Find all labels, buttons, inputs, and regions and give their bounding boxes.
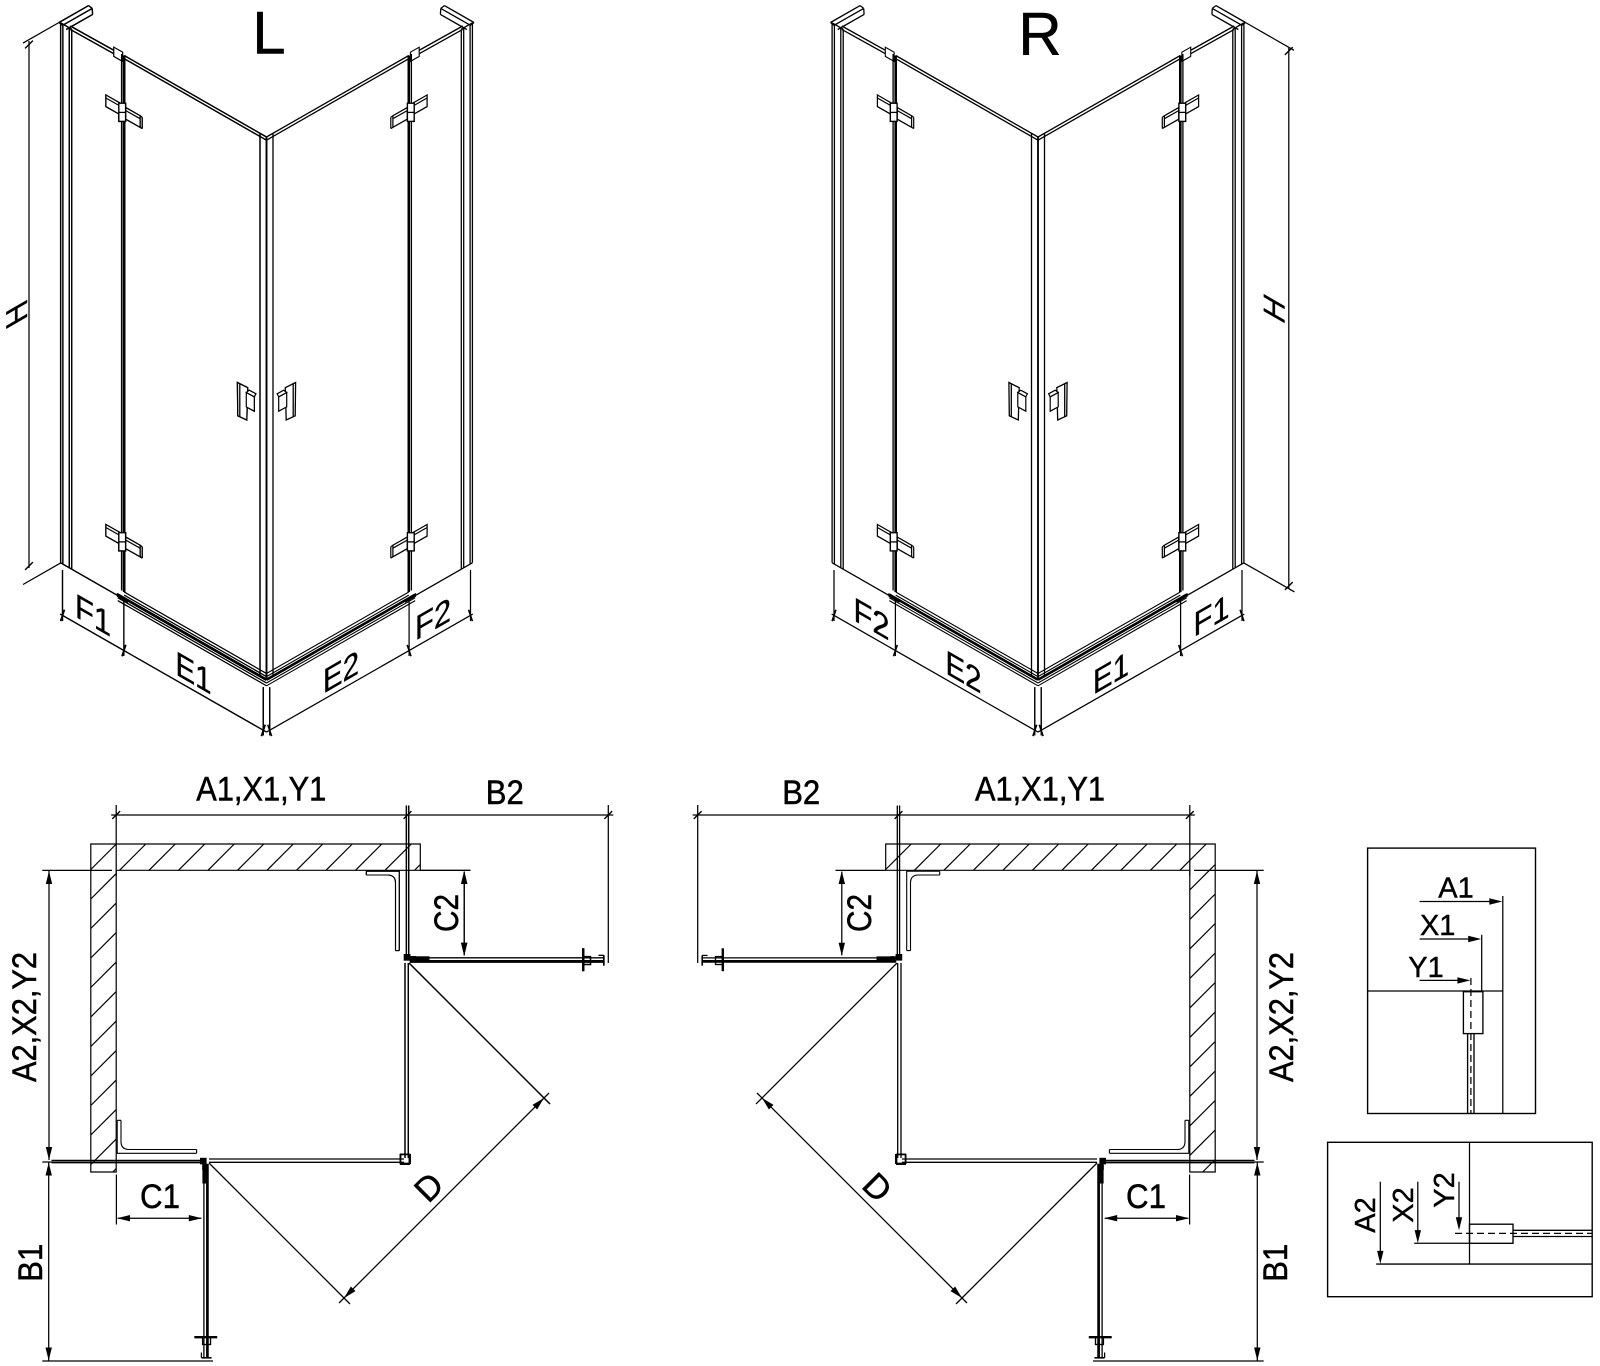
svg-text:A2: A2 (1350, 1197, 1382, 1232)
svg-text:L: L (252, 0, 285, 67)
svg-text:A1,X1,Y1: A1,X1,Y1 (975, 771, 1105, 809)
svg-text:B1: B1 (1257, 1244, 1295, 1282)
svg-text:C1: C1 (1126, 1178, 1166, 1216)
svg-text:B2: B2 (782, 774, 820, 812)
svg-text:X1: X1 (1420, 910, 1455, 942)
svg-text:X2: X2 (1388, 1187, 1420, 1222)
svg-text:A1,X1,Y1: A1,X1,Y1 (196, 771, 326, 809)
svg-text:C2: C2 (428, 894, 466, 932)
svg-text:C2: C2 (841, 894, 879, 932)
svg-text:R: R (1018, 1, 1061, 68)
svg-text:C1: C1 (140, 1178, 180, 1216)
svg-text:B1: B1 (12, 1244, 50, 1282)
svg-text:A2,X2,Y2: A2,X2,Y2 (6, 952, 44, 1082)
svg-text:Y1: Y1 (1408, 952, 1443, 984)
svg-text:A1: A1 (1438, 872, 1473, 904)
svg-text:B2: B2 (486, 774, 524, 812)
svg-text:Y2: Y2 (1429, 1172, 1461, 1207)
svg-text:A2,X2,Y2: A2,X2,Y2 (1263, 952, 1301, 1082)
